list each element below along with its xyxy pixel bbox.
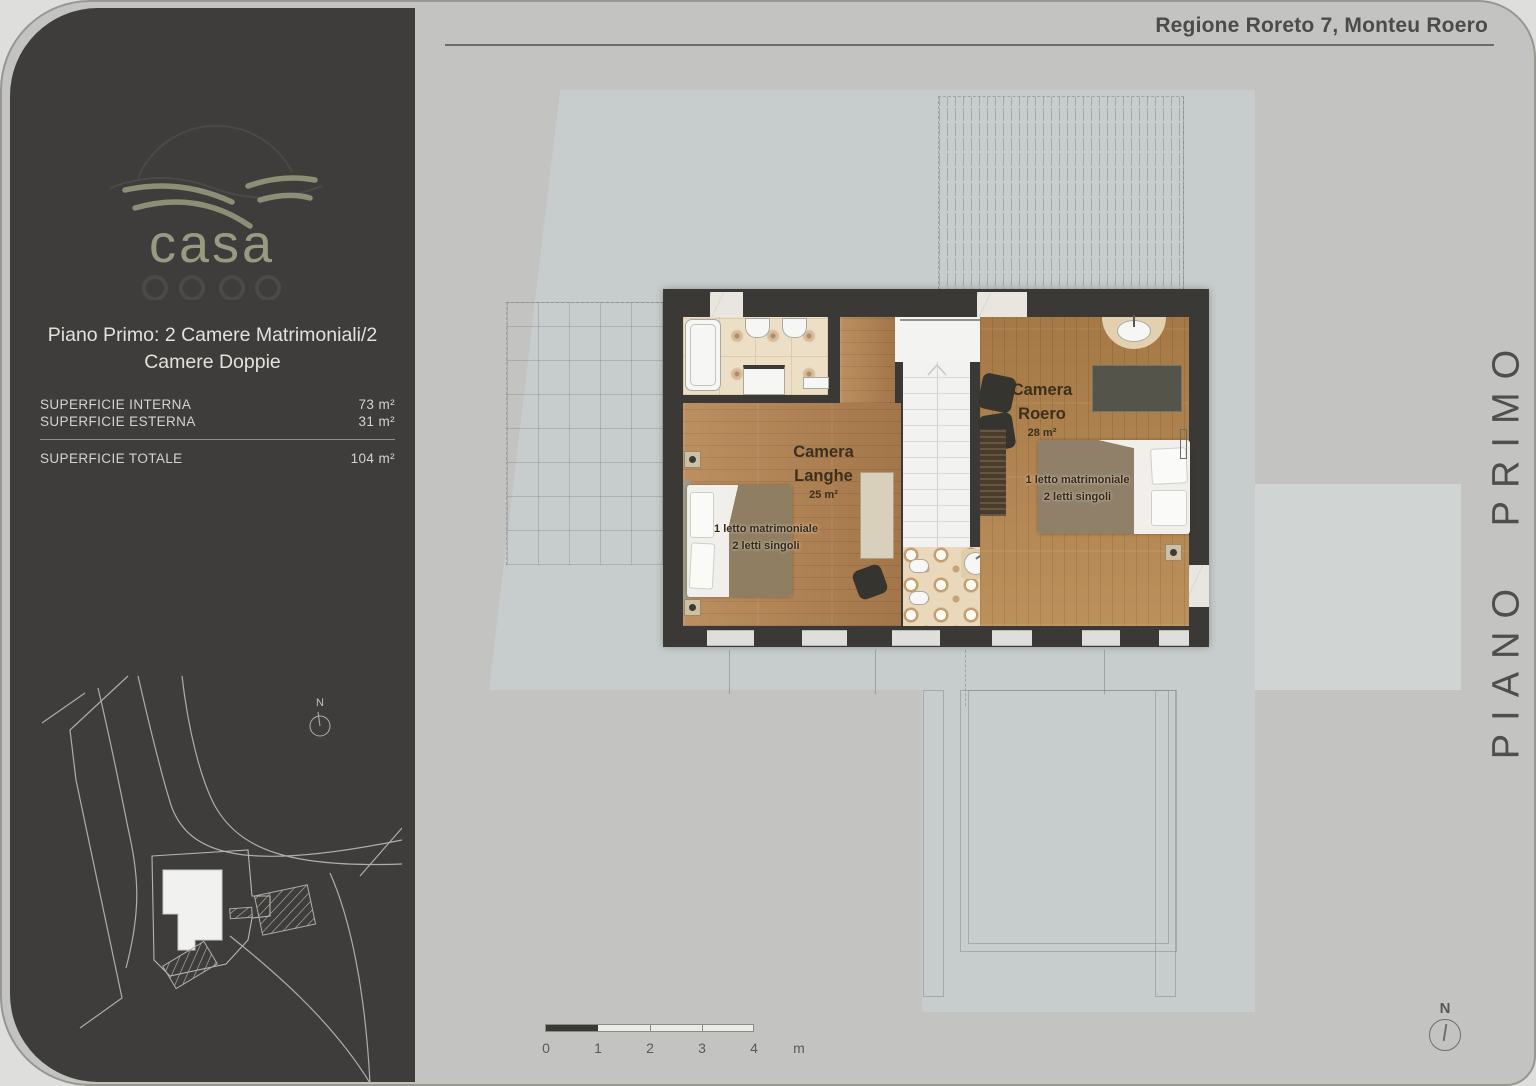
wardrobe <box>1092 365 1182 412</box>
door-threshold-right <box>1189 565 1209 607</box>
surface-total-row: SUPERFICIE TOTALE 104 m² <box>40 450 395 467</box>
scale-tick <box>650 1025 651 1031</box>
scale-tick <box>702 1025 703 1031</box>
bathtub <box>685 319 721 391</box>
brochure-page: Regione Roreto 7, Monteu Roero PIANO PRI… <box>0 0 1536 1086</box>
stair-flight <box>903 362 970 547</box>
stair-landing <box>895 317 980 362</box>
bed-label-langhe: 1 letto matrimoniale 2 letti singoli <box>701 521 831 555</box>
table-divider <box>40 439 395 440</box>
surface-value: 73 m² <box>358 396 395 413</box>
site-main-building <box>163 870 222 950</box>
floor-plan: Camera Langhe 25 m² 1 letto matrimoniale… <box>663 289 1209 647</box>
floor-name-vertical: PIANO PRIMO <box>1486 337 1529 759</box>
site-plan: N <box>30 668 402 1083</box>
window-axis-line <box>1104 650 1105 694</box>
nightstand <box>684 451 701 468</box>
vanity-counter <box>1102 317 1166 349</box>
bidet <box>909 559 929 573</box>
toilet <box>909 591 929 605</box>
scale-number: 2 <box>646 1040 654 1056</box>
runner-rug <box>980 429 1006 516</box>
nightstand <box>1165 544 1182 561</box>
corridor-floor <box>840 317 895 403</box>
balcony-outline-inner <box>968 690 1169 944</box>
stair-direction-arrow <box>927 364 947 376</box>
room-area: 28 m² <box>992 427 1092 439</box>
window-axis-line <box>875 650 876 694</box>
window <box>707 630 754 646</box>
window-axis-line <box>965 650 966 706</box>
site-north-indicator: N <box>310 697 330 736</box>
window <box>1082 630 1120 646</box>
roof-grid <box>506 302 664 565</box>
scale-number: 1 <box>594 1040 602 1056</box>
bedroom-roero-floor: Camera Roero 28 m² 1 letto matrimoniale … <box>980 317 1189 626</box>
surface-value: 104 m² <box>351 450 395 467</box>
brand-logo: casa <box>80 50 345 300</box>
pouf <box>851 563 889 601</box>
bed-note: 1 letto matrimoniale <box>1005 472 1150 489</box>
surface-row: SUPERFICIE ESTERNA 31 m² <box>40 413 395 430</box>
scale-number: 3 <box>698 1040 706 1056</box>
scale-bar-filled-segment <box>546 1025 598 1031</box>
brand-ghost-word <box>144 277 279 299</box>
surface-value: 31 m² <box>358 413 395 430</box>
nightstand <box>684 599 701 616</box>
towel-radiator <box>803 377 829 389</box>
door-threshold <box>977 292 1027 317</box>
door-threshold <box>710 292 743 317</box>
pillow <box>1151 490 1187 526</box>
window <box>802 630 847 646</box>
site-buildings <box>152 850 316 989</box>
plan-title: Piano Primo: 2 Camere Matrimoniali/2 Cam… <box>40 322 385 377</box>
bed-note: 1 letto matrimoniale <box>701 521 831 538</box>
site-north-label: N <box>316 697 324 709</box>
bidet <box>745 318 770 338</box>
surface-table: SUPERFICIE INTERNA 73 m² SUPERFICIE ESTE… <box>40 396 395 467</box>
wall-radiator <box>1180 429 1187 459</box>
window-bathroom <box>892 630 940 646</box>
toilet <box>782 318 807 338</box>
scale-number: 4 <box>750 1040 758 1056</box>
sidebar: casa Piano Primo: 2 Camere Matrimoniali/… <box>10 8 415 1082</box>
room-area: 25 m² <box>771 489 876 501</box>
bathroom-main-floor <box>683 317 828 395</box>
north-label: N <box>1440 1000 1451 1017</box>
site-annex-hatched <box>254 885 315 935</box>
faucet <box>1133 315 1135 327</box>
scale-number: 0 <box>542 1040 550 1056</box>
bed-note: 2 letti singoli <box>701 538 831 555</box>
address-title: Regione Roreto 7, Monteu Roero <box>1155 14 1488 38</box>
room-label-langhe: Camera Langhe 25 m² <box>771 441 876 501</box>
bedroom-langhe-floor: Camera Langhe 25 m² 1 letto matrimoniale… <box>683 403 901 626</box>
header-rule <box>445 44 1494 46</box>
bathroom-partition-wall <box>828 317 840 359</box>
pillar-strip-right <box>1155 690 1176 997</box>
bathtub-inner <box>690 324 716 386</box>
window <box>992 630 1032 646</box>
pillar-strip-left <box>923 690 944 997</box>
surface-label: SUPERFICIE TOTALE <box>40 450 183 467</box>
scale-unit: m <box>793 1040 805 1056</box>
room-name: Camera Langhe <box>771 441 876 489</box>
surface-label: SUPERFICIE ESTERNA <box>40 413 196 430</box>
bed-label-roero: 1 letto matrimoniale 2 letti singoli <box>1005 472 1150 506</box>
brand-name: casa <box>149 214 275 274</box>
surface-label: SUPERFICIE INTERNA <box>40 396 191 413</box>
terrace-side-area <box>1255 484 1461 690</box>
window-axis-line <box>729 650 730 694</box>
shower <box>743 365 785 395</box>
north-compass: N <box>1425 1000 1465 1058</box>
bed-note: 2 letti singoli <box>1005 489 1150 506</box>
scale-bar-track <box>545 1024 754 1032</box>
room-name: Camera Roero <box>992 379 1092 427</box>
window <box>1159 630 1189 646</box>
room-label-roero: Camera Roero 28 m² <box>992 379 1092 439</box>
scale-bar: 0 1 2 3 4 m <box>545 1024 845 1064</box>
logo-ghost-arc <box>138 126 292 178</box>
surface-row: SUPERFICIE INTERNA 73 m² <box>40 396 395 413</box>
